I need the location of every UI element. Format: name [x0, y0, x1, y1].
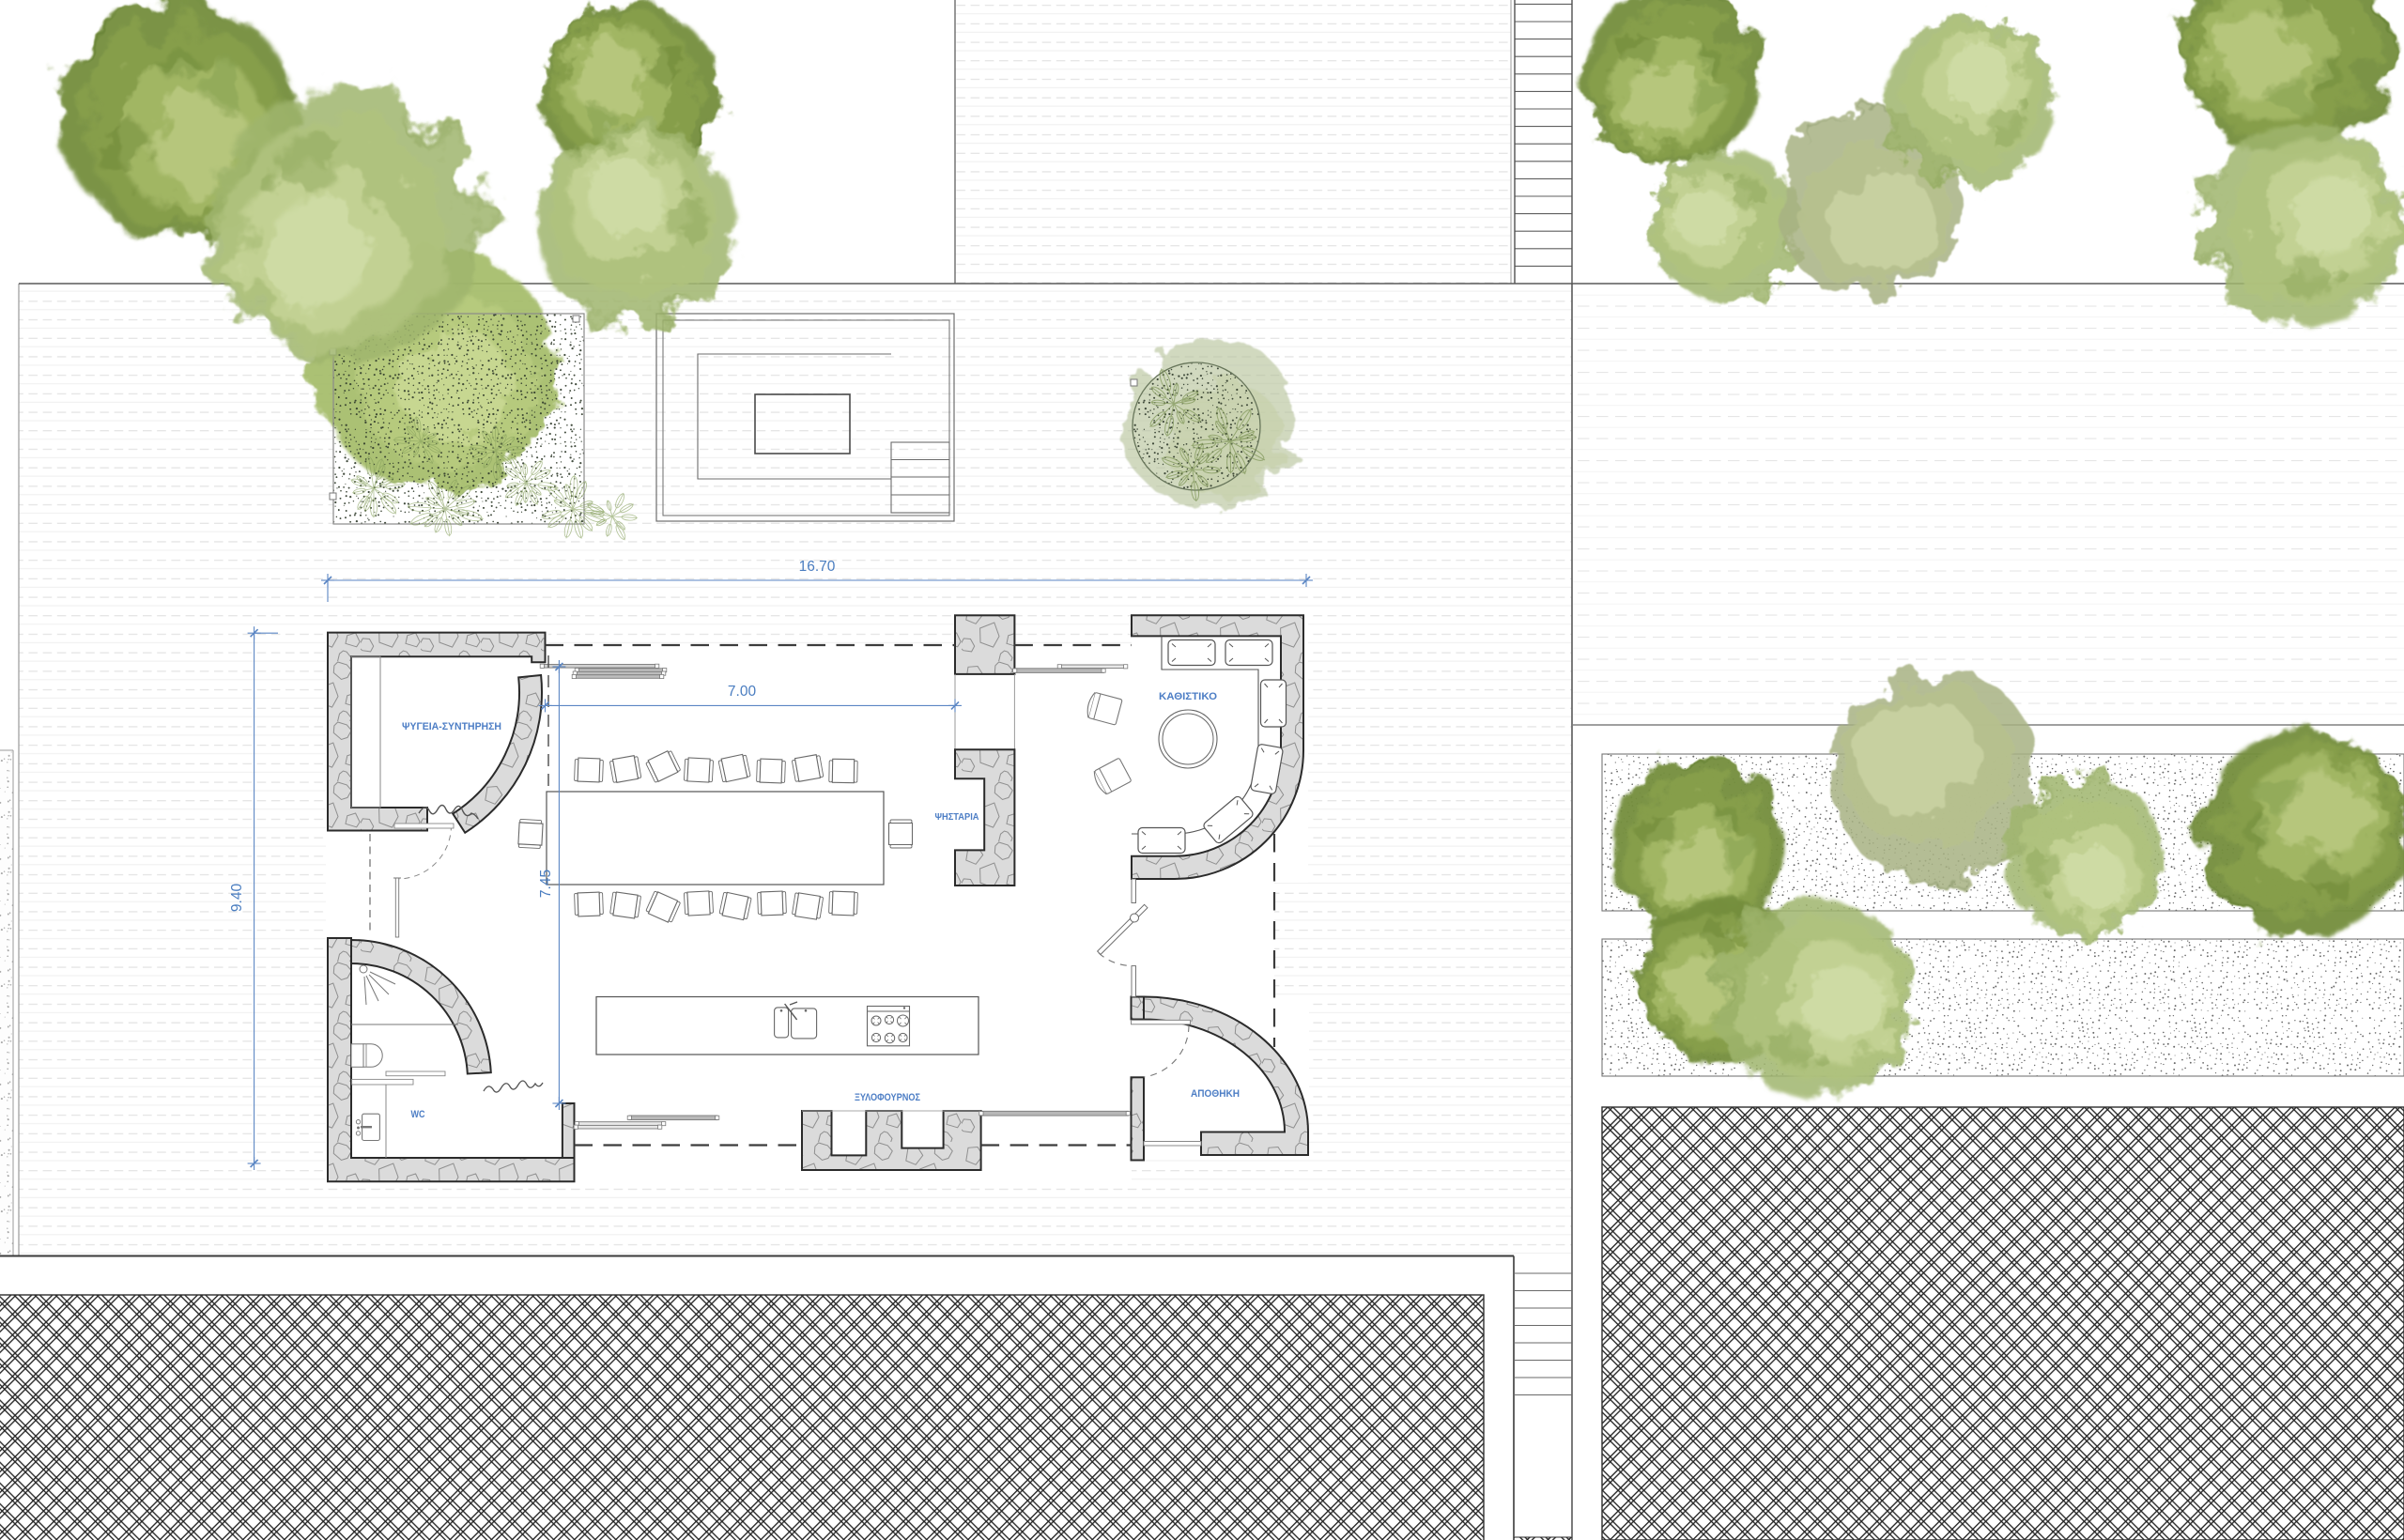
svg-text:ΞΥΛΟΦΟΥΡΝΟΣ: ΞΥΛΟΦΟΥΡΝΟΣ: [855, 1092, 920, 1103]
svg-text:16.70: 16.70: [799, 559, 836, 575]
svg-text:7.45: 7.45: [538, 870, 554, 898]
svg-text:ΨΗΣΤΑΡΙΑ: ΨΗΣΤΑΡΙΑ: [935, 812, 979, 823]
svg-text:WC: WC: [411, 1109, 425, 1120]
svg-text:9.40: 9.40: [229, 884, 245, 913]
svg-text:ΑΠΟΘΗΚΗ: ΑΠΟΘΗΚΗ: [1191, 1088, 1240, 1100]
svg-text:7.00: 7.00: [728, 684, 757, 700]
svg-text:ΚΑΘΙΣΤΙΚΟ: ΚΑΘΙΣΤΙΚΟ: [1159, 691, 1217, 702]
svg-text:ΨΥΓΕΙΑ-ΣΥΝΤΗΡΗΣΗ: ΨΥΓΕΙΑ-ΣΥΝΤΗΡΗΣΗ: [402, 721, 501, 732]
